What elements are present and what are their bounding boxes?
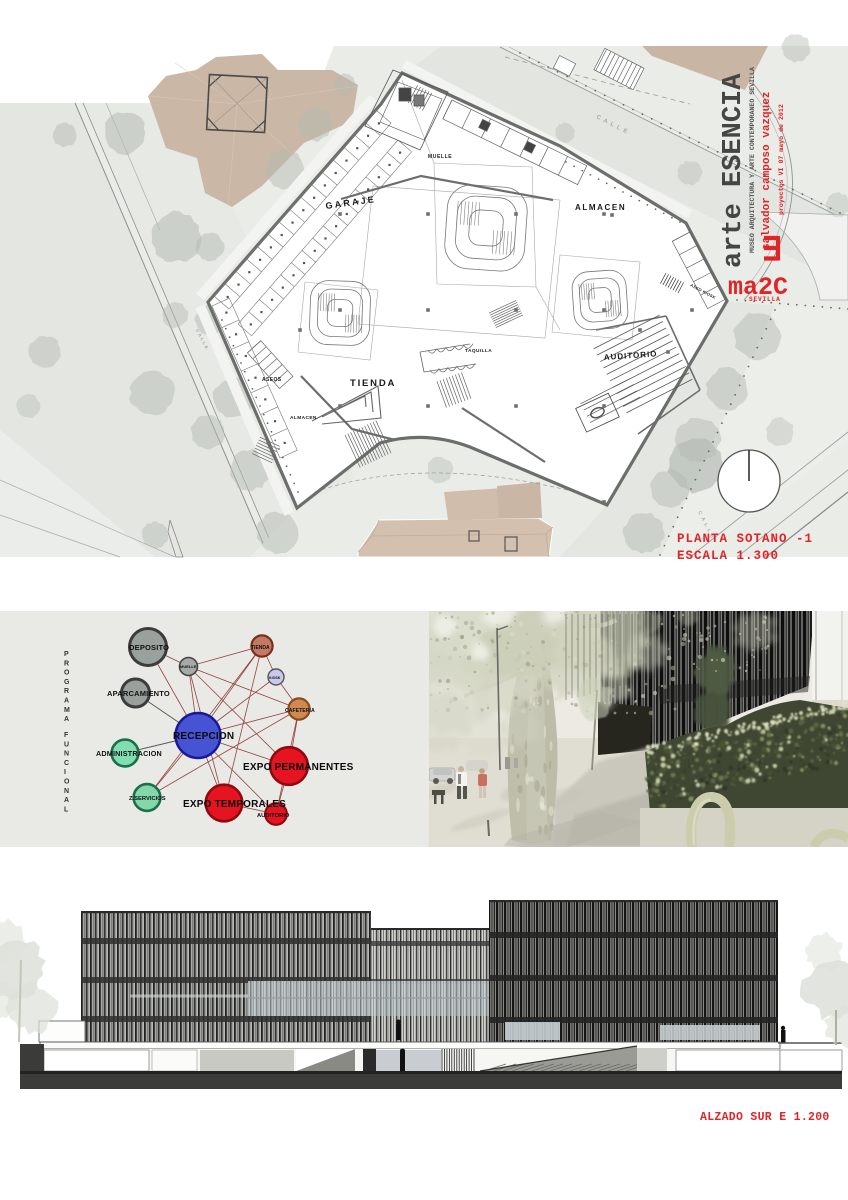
svg-text:EXPO PERMANENTES: EXPO PERMANENTES [243,762,354,773]
svg-text:arte ESENCIA: arte ESENCIA [719,73,749,268]
svg-text:ESCALA 1.300: ESCALA 1.300 [677,549,779,563]
svg-text:P: P [64,651,69,658]
svg-text:R: R [64,660,69,667]
svg-text:DEPOSITO: DEPOSITO [129,643,169,652]
svg-text:A: A [64,698,69,705]
svg-text:TIENDA: TIENDA [251,645,270,651]
svg-text:proyectos VI 07 mayo de 2012: proyectos VI 07 mayo de 2012 [778,104,785,215]
svg-text:F: F [64,732,69,739]
svg-text:N: N [64,751,69,758]
svg-text:ALMACEN: ALMACEN [575,203,626,212]
svg-text:TAQUILLA: TAQUILLA [465,348,492,354]
svg-text:U: U [64,741,69,748]
svg-text:salvador camposo vazquez: salvador camposo vazquez [761,92,773,250]
svg-text:M: M [64,707,70,714]
svg-text:PLANTA SOTANO -1: PLANTA SOTANO -1 [677,532,813,546]
svg-text:MUELLE: MUELLE [428,154,452,160]
svg-text:Z.SERVICIOS: Z.SERVICIOS [129,796,166,802]
svg-text:A: A [64,716,69,723]
svg-text:KIOSK: KIOSK [269,676,281,680]
svg-text:G: G [64,679,70,686]
svg-text:L: L [64,806,69,813]
svg-text:AUDITORIO: AUDITORIO [257,813,290,819]
svg-text:R: R [64,688,69,695]
svg-text:RECEPCION: RECEPCION [173,731,234,742]
svg-text:A: A [64,797,69,804]
svg-text:N: N [64,788,69,795]
svg-text:ALZADO SUR E 1.200: ALZADO SUR E 1.200 [700,1111,830,1124]
svg-text:CAFETERIA: CAFETERIA [285,708,315,714]
svg-text:MUSEO ARQUITECTURA Y ARTE CONT: MUSEO ARQUITECTURA Y ARTE CONTEMPORANEO … [749,67,756,253]
svg-text:C: C [64,760,69,767]
svg-text:O: O [64,670,70,677]
svg-text:I: I [64,769,66,776]
svg-text:ADMINISTRACION: ADMINISTRACION [96,749,162,758]
svg-text:TIENDA: TIENDA [350,378,396,389]
svg-text:ALMACEN: ALMACEN [290,415,317,421]
svg-text:SEVILLA: SEVILLA [749,296,781,303]
svg-text:ASEOS: ASEOS [262,377,282,383]
svg-text:APARCAMIENTO: APARCAMIENTO [107,689,170,698]
svg-text:EXPO TEMPORALES: EXPO TEMPORALES [183,799,286,810]
svg-text:O: O [64,779,70,786]
svg-text:MUELLE: MUELLE [180,664,197,669]
